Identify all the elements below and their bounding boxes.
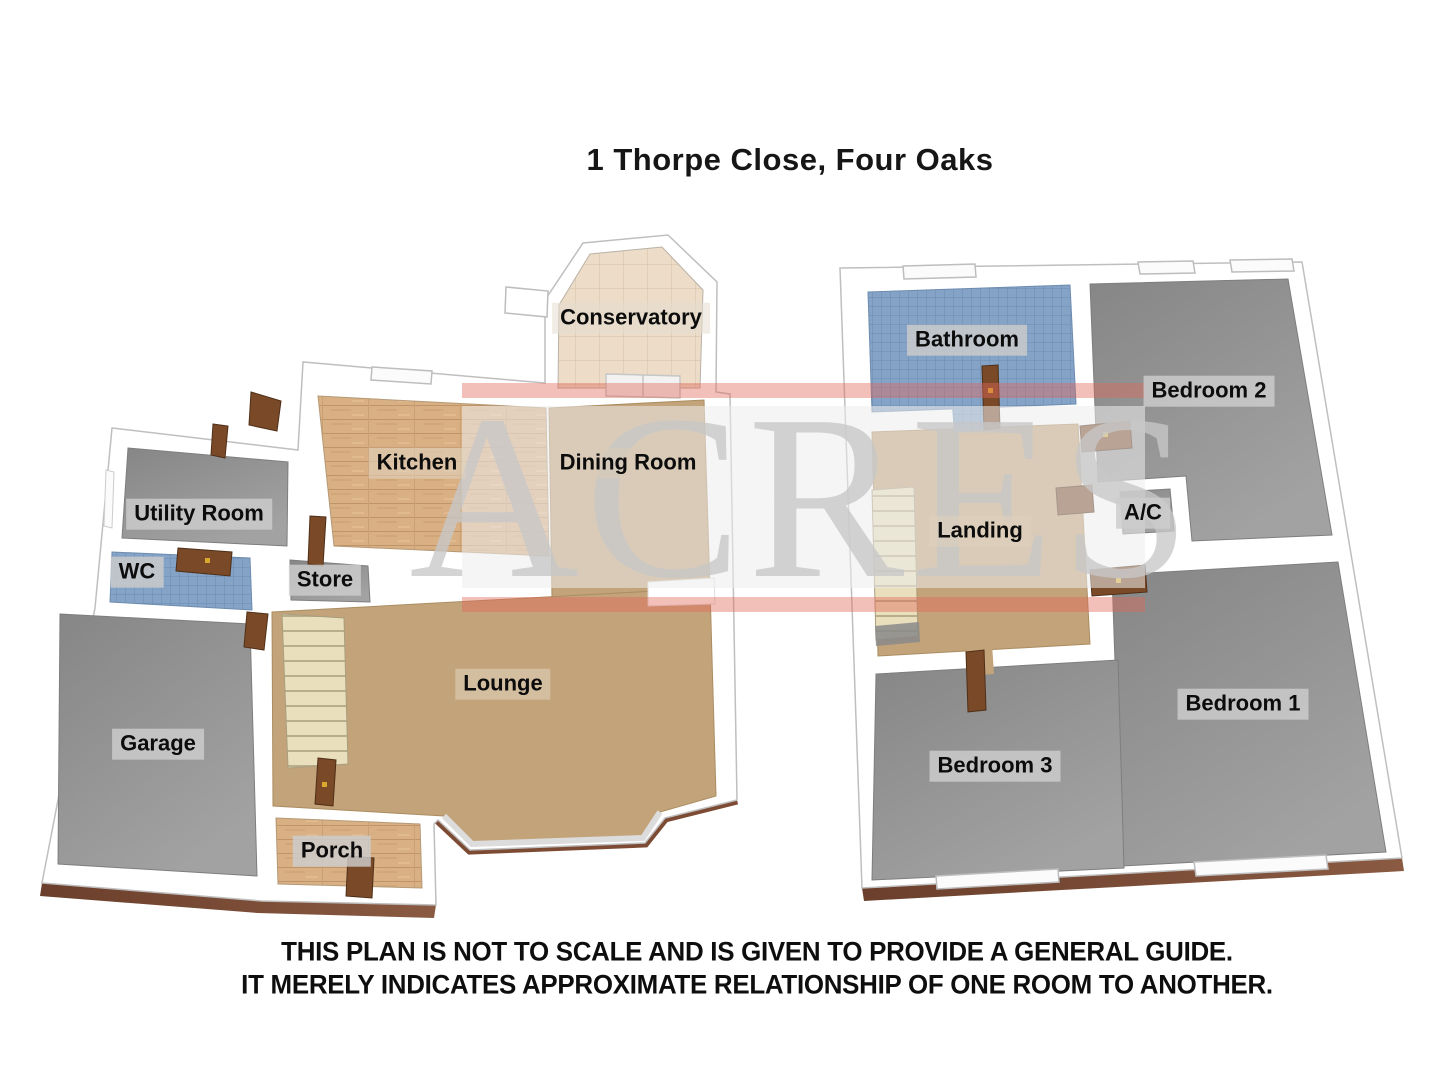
utility-window <box>104 470 114 528</box>
room-label-lounge: Lounge <box>455 669 550 700</box>
room-label-landing: Landing <box>929 516 1031 547</box>
room-label-bedroom-3: Bedroom 3 <box>930 751 1061 782</box>
room-label-store: Store <box>289 565 361 596</box>
disclaimer-line-2: IT MERELY INDICATES APPROXIMATE RELATION… <box>241 970 1273 1001</box>
kitchen-door <box>308 516 326 566</box>
door-swing-marker <box>322 782 327 787</box>
bedroom2-window-left <box>1138 261 1195 274</box>
conservatory-door-wing <box>505 287 548 317</box>
room-label-bedroom-2: Bedroom 2 <box>1144 376 1275 407</box>
wc-door <box>176 548 232 576</box>
kitchen-side-door <box>249 392 281 431</box>
ground-stairs <box>282 614 348 768</box>
room-label-conservatory: Conservatory <box>552 303 710 334</box>
door-swing-marker <box>205 558 210 563</box>
room-utility-floor <box>122 448 288 546</box>
bedroom3-door <box>966 650 986 712</box>
room-label-garage: Garage <box>112 729 204 760</box>
room-label-wc: WC <box>111 557 164 588</box>
room-label-dining-room: Dining Room <box>552 448 705 479</box>
bedroom2-window-right <box>1230 259 1294 272</box>
room-label-ac: A/C <box>1116 498 1170 529</box>
room-label-bathroom: Bathroom <box>907 325 1027 356</box>
room-label-porch: Porch <box>293 836 371 867</box>
watermark-text: ACRES <box>409 367 1196 627</box>
disclaimer-line-1: THIS PLAN IS NOT TO SCALE AND IS GIVEN T… <box>281 937 1233 968</box>
watermark-stripe-bottom <box>462 597 1145 612</box>
room-label-bedroom-1: Bedroom 1 <box>1178 689 1309 720</box>
page-title: 1 Thorpe Close, Four Oaks <box>587 142 994 178</box>
floor-plan-page: ACRES 1 Thorpe Close, Four Oaks Conserva… <box>0 0 1447 1080</box>
bathroom-window <box>903 264 976 279</box>
room-label-utility-room: Utility Room <box>126 499 272 530</box>
acres-watermark: ACRES <box>409 367 1196 627</box>
hall-door <box>244 612 268 650</box>
room-label-kitchen: Kitchen <box>369 448 466 479</box>
utility-exterior-door <box>211 424 228 458</box>
